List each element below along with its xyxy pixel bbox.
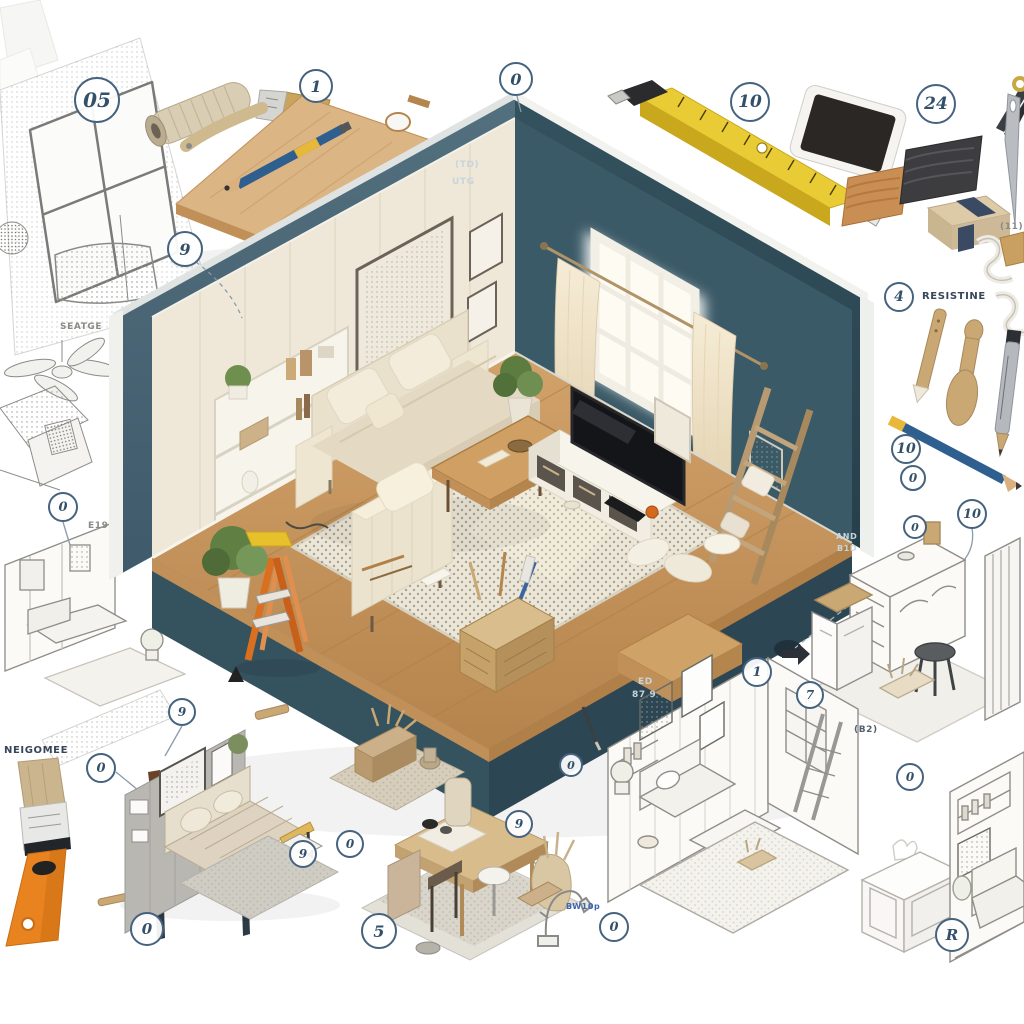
callout-badge-0f: 0 [130, 912, 164, 946]
callout-badge-9c: 9 [289, 840, 317, 868]
callout-badge-0j: 0 [896, 763, 924, 791]
label-brush-caption: NEIGOMEE [4, 745, 68, 756]
callout-badge-0g: 0 [336, 830, 364, 858]
thread [978, 232, 1024, 333]
callout-badge-5: 5 [361, 913, 397, 949]
callout-badge-0c: 0 [903, 515, 927, 539]
callout-badge-9a: 9 [167, 231, 203, 267]
illustration-layer [0, 0, 1024, 1024]
label-side-code-1: AND [836, 533, 857, 542]
callout-badge-9b: 9 [168, 698, 196, 726]
label-resistine: RESISTINE [922, 291, 986, 302]
callout-badge-10b: 10 [891, 434, 921, 464]
infographic-canvas: 05 1 0 10 24 9 4 10 0 0 10 0 9 0 0 9 0 5… [0, 0, 1024, 1024]
callout-badge-0h: 0 [559, 753, 583, 777]
label-plan-code: (B2) [854, 726, 878, 736]
callout-badge-10a: 10 [730, 82, 770, 122]
label-sketch-caption: SEATGE [60, 323, 102, 333]
flat-paintbrush-orange [6, 758, 71, 946]
callout-badge-0b: 0 [900, 465, 926, 491]
wood-stick-2 [255, 704, 290, 720]
callout-badge-0d: 0 [48, 492, 78, 522]
callout-badge-1: 1 [299, 69, 333, 103]
bedroom-sketch [0, 386, 92, 490]
callout-badge-24: 24 [916, 84, 956, 124]
callout-badge-7: 7 [796, 681, 824, 709]
label-side-code-2: B1D [837, 545, 857, 554]
label-wall-code-2: UTG [452, 178, 475, 188]
wooden-handle-tool [942, 317, 990, 428]
callout-badge-9d: 9 [505, 810, 533, 838]
callout-badge-r: R [935, 918, 969, 952]
label-base-code-2: 87 9 [632, 691, 656, 701]
callout-badge-1b: 1 [742, 657, 772, 687]
callout-badge-0a: 0 [499, 62, 533, 96]
callout-badge-0i: 0 [599, 912, 629, 942]
label-base-code-1: ED [638, 678, 653, 688]
label-faucet-code: BW10p [566, 903, 600, 912]
carving-stick [909, 307, 948, 404]
callout-badge-0e: 0 [86, 753, 116, 783]
callout-badge-05: 05 [74, 77, 120, 123]
wood-swatch-dark [900, 136, 982, 204]
label-needle-code: (11) [1000, 223, 1023, 233]
wood-swatch-light [842, 166, 908, 226]
label-e19: E19 [88, 522, 108, 532]
sewing-needle [1005, 94, 1020, 225]
marker-pen [992, 329, 1021, 457]
callout-badge-10c: 10 [957, 499, 987, 529]
label-wall-code-1: (TD) [455, 161, 479, 171]
callout-badge-4: 4 [884, 282, 914, 312]
